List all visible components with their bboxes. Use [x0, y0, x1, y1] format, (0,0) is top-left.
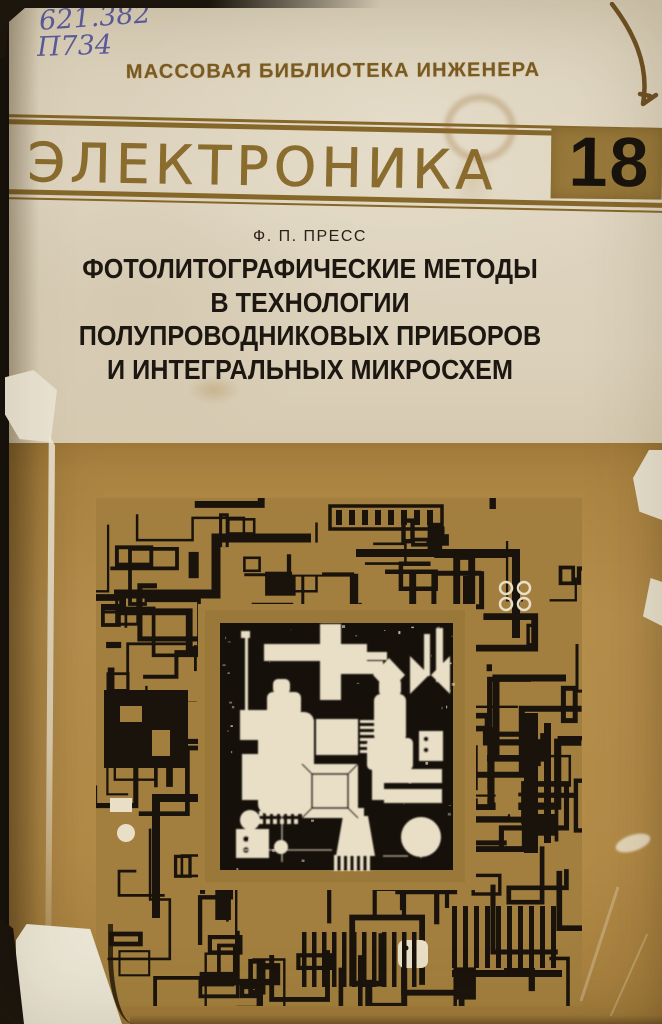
stain-smudge — [450, 150, 494, 214]
title-line-4: И ИНТЕГРАЛЬНЫХ МИКРОСХЕМ — [40, 353, 580, 387]
title-line-1: ФОТОЛИТОГРАФИЧЕСКИЕ МЕТОДЫ — [40, 252, 580, 286]
handwritten-call-number: 621.382 П734 — [38, 0, 153, 63]
spine-edge — [0, 0, 9, 1024]
spine-shadow — [9, 0, 39, 1024]
book-cover: 621.382 П734 МАССОВАЯ БИБЛИОТЕКА ИНЖЕНЕР… — [0, 0, 662, 1024]
book-title: ФОТОЛИТОГРАФИЧЕСКИЕ МЕТОДЫ В ТЕХНОЛОГИИ … — [10, 252, 610, 386]
top-edge-shadow — [0, 0, 380, 8]
author-name: Ф. П. ПРЕСС — [10, 228, 610, 246]
series-name: ЭЛЕКТРОНИКА — [27, 136, 498, 198]
title-line-3: ПОЛУПРОВОДНИКОВЫХ ПРИБОРОВ — [40, 319, 580, 353]
call-number-cutter: П734 — [37, 30, 150, 61]
bottom-edge-shadow — [130, 1015, 662, 1024]
ic-die-artwork — [96, 498, 582, 1006]
title-line-2: В ТЕХНОЛОГИИ — [40, 286, 580, 320]
series-number-box: 18 — [551, 127, 662, 199]
series-number: 18 — [568, 126, 651, 197]
series-label: МАССОВАЯ БИБЛИОТЕКА ИНЖЕНЕРА — [33, 58, 633, 84]
pen-mark-top-right — [596, 2, 660, 120]
